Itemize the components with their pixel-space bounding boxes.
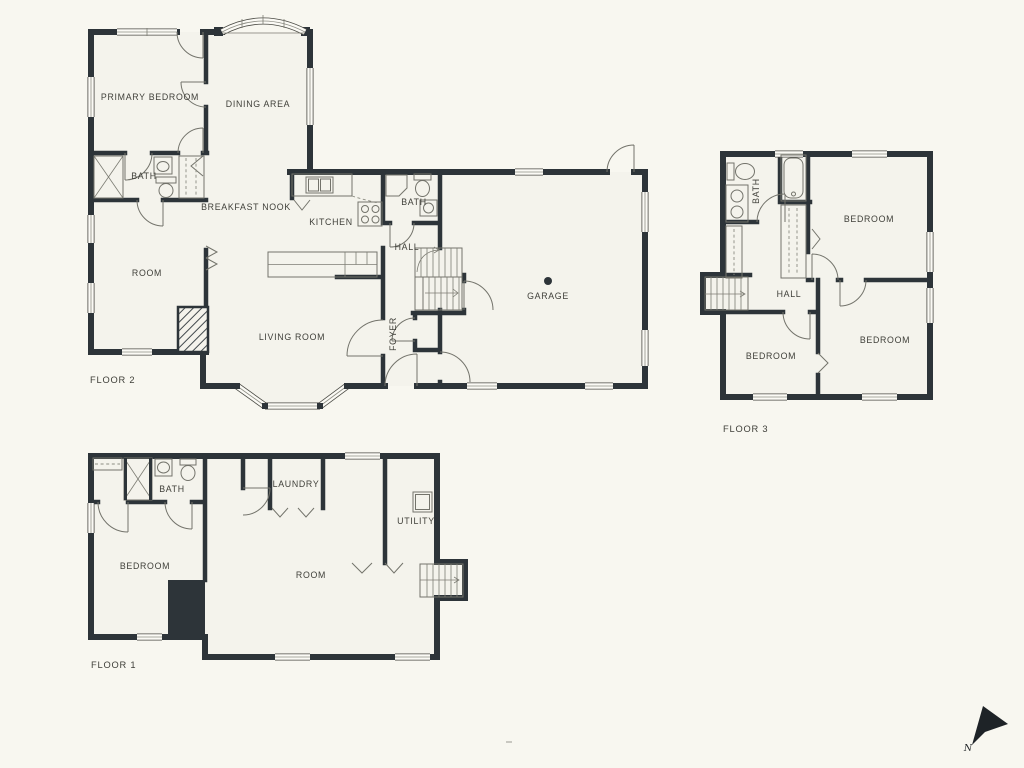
floor3-bath-label: BATH bbox=[751, 178, 761, 204]
floor3-bedroom-right-label: BEDROOM bbox=[860, 335, 910, 345]
north-arrow-icon bbox=[972, 706, 1008, 745]
floor2-primary-bedroom-label: PRIMARY BEDROOM bbox=[101, 92, 199, 102]
fireplace-hatch-block bbox=[178, 307, 208, 352]
north-label: N bbox=[963, 743, 973, 754]
floor2-hall-label: HALL bbox=[395, 242, 420, 252]
floor2-title: FLOOR 2 bbox=[90, 375, 135, 385]
floor2-foyer-label: FOYER bbox=[388, 317, 398, 351]
floor2-room-label: ROOM bbox=[132, 268, 162, 278]
floor1-utility-label: UTILITY bbox=[397, 516, 435, 526]
floor2-garage-label: GARAGE bbox=[527, 291, 569, 301]
floor2-bath-label: BATH bbox=[131, 171, 157, 181]
chimney-block bbox=[168, 580, 205, 637]
floor2-bath2-label: BATH bbox=[401, 197, 427, 207]
floor2-plan: PRIMARY BEDROOM DINING AREA BATH BREAKFA… bbox=[90, 15, 645, 409]
garage-post-dot bbox=[544, 277, 552, 285]
floor-plan-svg: PRIMARY BEDROOM DINING AREA BATH BREAKFA… bbox=[0, 0, 1024, 768]
floor2-breakfast-nook-label: BREAKFAST NOOK bbox=[201, 202, 291, 212]
floor2-dining-area-label: DINING AREA bbox=[226, 99, 290, 109]
floor1-title: FLOOR 1 bbox=[91, 660, 136, 670]
floor3-plan: BATH BEDROOM HALL BEDROOM BEDROOM FLOOR … bbox=[703, 154, 930, 434]
floor3-bedroom-left-label: BEDROOM bbox=[746, 351, 796, 361]
floor1-bath-label: BATH bbox=[159, 484, 185, 494]
floor2-kitchen-label: KITCHEN bbox=[309, 217, 353, 227]
north-arrow: N bbox=[963, 706, 1008, 754]
floor3-hall-label: HALL bbox=[777, 289, 802, 299]
floor2-living-room-label: LIVING ROOM bbox=[259, 332, 325, 342]
floor1-laundry-label: LAUNDRY bbox=[273, 479, 320, 489]
floor1-bedroom-label: BEDROOM bbox=[120, 561, 170, 571]
floor1-plan: BATH LAUNDRY BEDROOM ROOM UTILITY FLOOR … bbox=[91, 456, 465, 670]
floor3-title: FLOOR 3 bbox=[723, 424, 768, 434]
floor-plan-page: PRIMARY BEDROOM DINING AREA BATH BREAKFA… bbox=[0, 0, 1024, 768]
floor3-bedroom-top-label: BEDROOM bbox=[844, 214, 894, 224]
floor1-room-label: ROOM bbox=[296, 570, 326, 580]
